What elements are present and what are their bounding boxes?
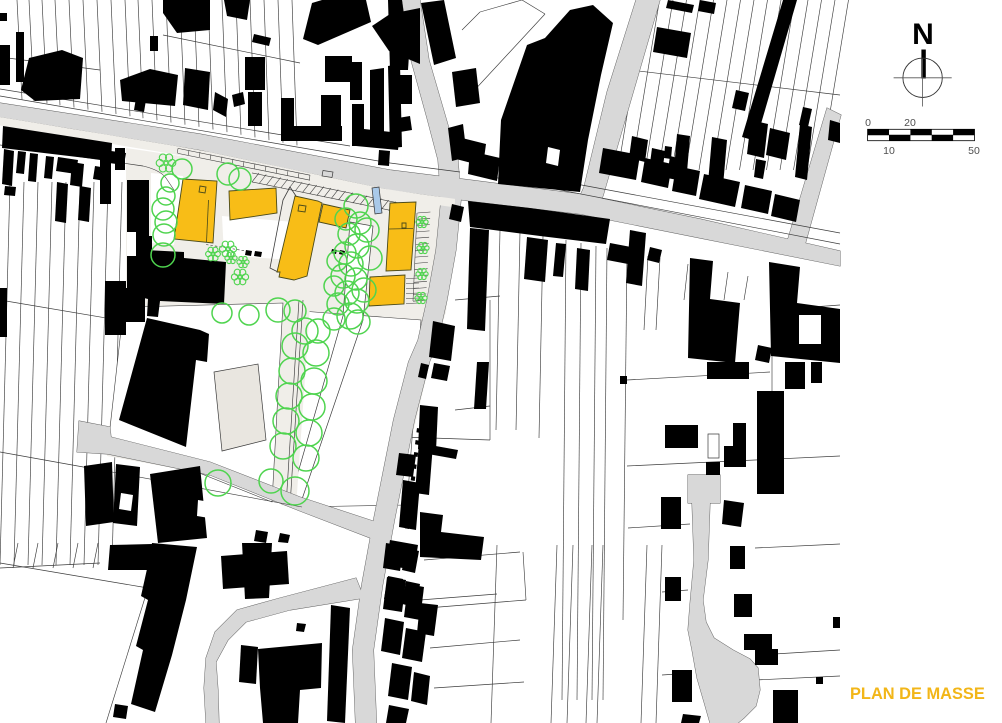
svg-text:50: 50	[968, 145, 980, 157]
svg-text:N: N	[912, 18, 934, 51]
svg-text:20: 20	[904, 117, 916, 129]
svg-text:0: 0	[865, 117, 871, 129]
svg-text:PLAN DE MASSE: PLAN DE MASSE	[850, 685, 985, 703]
svg-text:10: 10	[883, 145, 895, 157]
